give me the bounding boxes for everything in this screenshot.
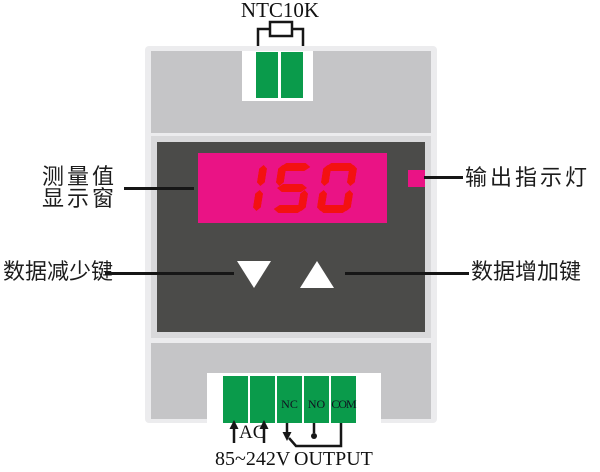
- callout-line-decrease: [105, 272, 234, 275]
- seven-segment-digits: [226, 163, 234, 213]
- sensor-terminal-2: [281, 52, 303, 98]
- display-digit: [316, 163, 358, 213]
- voltage-label: 85~242V: [215, 448, 281, 471]
- callout-display-window: 测量值 显示窗: [42, 166, 117, 210]
- display-digit: [226, 163, 268, 213]
- output-indicator-led: [408, 170, 425, 187]
- callout-increase-key: 数据增加键: [471, 261, 581, 283]
- callout-line-indicator: [424, 176, 463, 179]
- callout-display-window-line2: 显示窗: [42, 188, 117, 210]
- increase-key-button[interactable]: [300, 261, 334, 288]
- device-body: NC NO COM: [145, 46, 437, 423]
- callout-line-increase: [345, 272, 469, 275]
- callout-line-display: [124, 187, 194, 190]
- callout-output-indicator: 输出指示灯: [465, 167, 590, 189]
- front-panel: [157, 142, 425, 332]
- callout-decrease-key: 数据减少键: [3, 261, 113, 283]
- sensor-terminal-1: [256, 52, 278, 98]
- measurement-display: [198, 153, 387, 223]
- output-label: OUTPUT: [294, 448, 364, 471]
- display-digit: [271, 163, 313, 213]
- ac-label: AC: [239, 422, 265, 444]
- decrease-key-button[interactable]: [237, 261, 271, 288]
- callout-display-window-line1: 测量值: [42, 166, 117, 188]
